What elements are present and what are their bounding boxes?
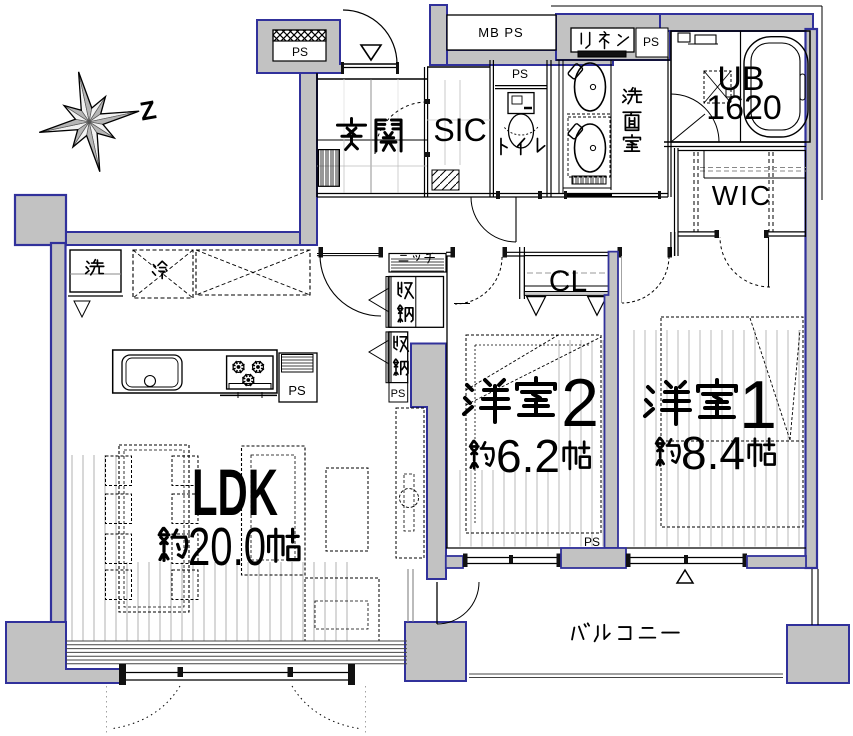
- svg-text:PS: PS: [292, 45, 308, 59]
- svg-text:2: 2: [561, 365, 599, 441]
- svg-text:PS: PS: [584, 535, 600, 549]
- svg-text:PS: PS: [643, 35, 659, 49]
- svg-text:PS: PS: [288, 383, 306, 398]
- svg-text:MB PS: MB PS: [478, 25, 523, 40]
- svg-text:8.4: 8.4: [681, 427, 745, 479]
- svg-text:WIC: WIC: [712, 180, 772, 211]
- svg-text:PS: PS: [391, 388, 406, 400]
- svg-text:Z: Z: [138, 94, 159, 126]
- svg-text:PS: PS: [512, 67, 528, 81]
- svg-text:CL: CL: [549, 265, 587, 298]
- svg-text:6.2: 6.2: [496, 430, 560, 482]
- svg-text:20.0: 20.0: [188, 517, 266, 577]
- svg-text:1620: 1620: [706, 89, 782, 127]
- svg-text:SIC: SIC: [433, 112, 486, 148]
